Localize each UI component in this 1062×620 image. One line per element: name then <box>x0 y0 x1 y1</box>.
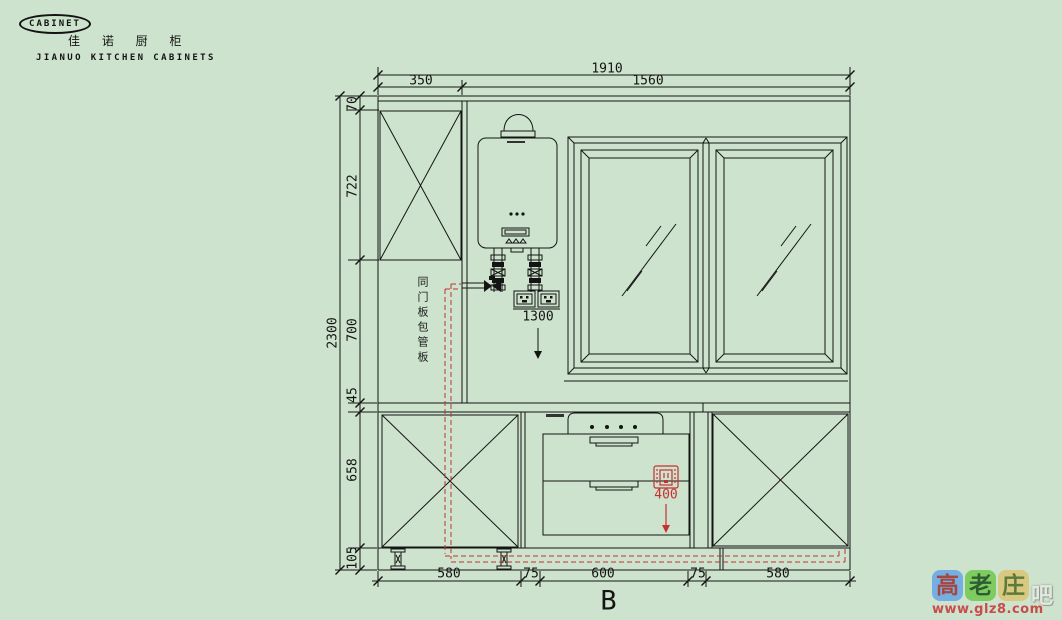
dim-left-seg-5: 105 <box>347 546 360 569</box>
dim-top-left: 350 <box>409 75 432 88</box>
brand-title-chinese: 佳 诺 厨 柜 <box>68 32 190 49</box>
watermark-url: www.glz8.com <box>932 602 1044 617</box>
brand-title-english: JIANUO KITCHEN CABINETS <box>36 53 216 63</box>
dim-left-seg-0: 70 <box>347 96 360 112</box>
dim-left-seg-2: 700 <box>347 318 360 341</box>
cabinet-structure <box>378 96 850 570</box>
dim-bottom-seg-3: 75 <box>690 568 706 581</box>
dim-left-seg-1: 722 <box>347 174 360 197</box>
socket-height-label: 1300 <box>522 311 553 324</box>
watermark-tile-3: 庄 <box>998 570 1029 601</box>
dim-left-seg-3: 45 <box>347 387 360 403</box>
cad-drawing-canvas: CABINET 佳 诺 厨 柜 JIANUO KITCHEN CABINETS … <box>0 0 1062 620</box>
dim-bottom-seg-4: 580 <box>766 568 789 581</box>
pipe-panel-note: 同门板包管板 <box>414 276 430 380</box>
dim-bottom-seg-2: 600 <box>591 568 614 581</box>
logo-badge-text: CABINET <box>29 19 81 29</box>
water-heater <box>478 115 557 293</box>
dim-total-width: 1910 <box>591 63 622 76</box>
watermark-tile-1: 高 <box>932 570 963 601</box>
dim-bottom-seg-0: 580 <box>437 568 460 581</box>
stove-and-sterilizer <box>543 413 689 535</box>
watermark-tiles: 高 老 庄 <box>932 570 1029 601</box>
watermark: 高 老 庄 吧 www.glz8.com <box>930 566 1062 620</box>
dim-top-right: 1560 <box>632 75 663 88</box>
dim-total-height: 2300 <box>327 317 340 348</box>
dim-left-seg-4: 658 <box>347 458 360 481</box>
wall-socket-pair <box>513 291 560 359</box>
stove-socket-height-label: 400 <box>654 489 677 502</box>
gas-pipe-route <box>445 284 845 562</box>
watermark-tile-2: 老 <box>965 570 996 601</box>
logo-badge-oval: CABINET <box>19 14 91 34</box>
elevation-view-label: B <box>600 588 617 615</box>
window <box>568 137 847 374</box>
dim-bottom-seg-1: 75 <box>523 568 539 581</box>
